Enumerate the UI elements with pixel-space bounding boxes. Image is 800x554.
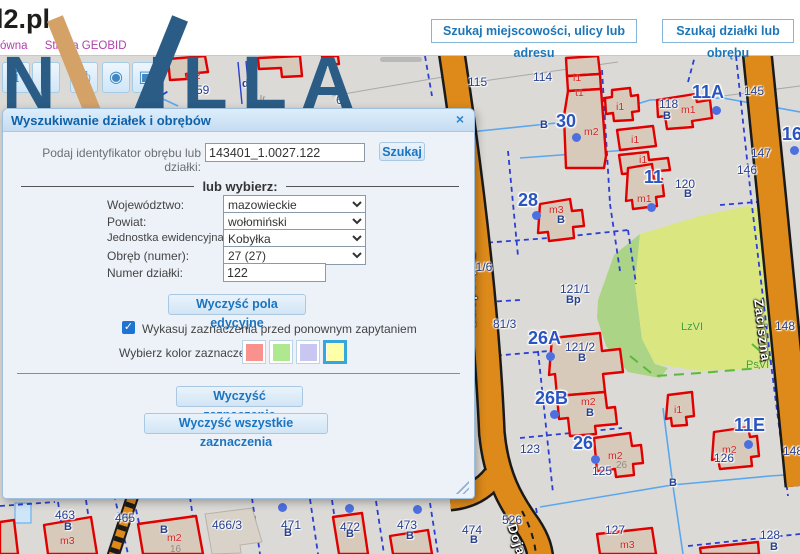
dialog-resize-handle[interactable] — [454, 479, 469, 494]
map-label: B — [578, 352, 586, 364]
search-place-button[interactable]: Szukaj miejscowości, ulicy lub adresu — [431, 19, 637, 43]
selection-color-swatch-0[interactable] — [242, 340, 266, 364]
address-point-dot — [278, 503, 287, 512]
map-label: B — [346, 528, 354, 540]
map-label: i1 — [631, 134, 639, 146]
map-label: 123 — [520, 442, 540, 456]
map-label: 26 — [573, 433, 593, 454]
globe-icon[interactable]: ◉ — [102, 62, 130, 93]
map-label: 66 — [336, 93, 349, 107]
clear-fields-button[interactable]: Wyczyść pola edycyjne — [168, 294, 306, 315]
map-label: 26 — [616, 460, 627, 471]
address-point-dot — [413, 505, 422, 514]
address-point-dot — [572, 133, 581, 142]
map-label: 26B — [535, 388, 568, 409]
parcel-search-dialog: Wyszukiwanie działek i obrębów × Podaj i… — [2, 108, 475, 499]
precinct-label: Obręb (numer): — [107, 249, 189, 263]
map-label: LzVI — [681, 321, 703, 333]
map-label: i1 — [674, 404, 682, 416]
map-label: 466/3 — [212, 518, 242, 532]
close-icon[interactable]: × — [456, 111, 464, 127]
map-label: 146 — [737, 163, 757, 177]
map-label: B — [557, 214, 565, 226]
map-label: 59 — [196, 83, 209, 97]
map-label: 145 — [744, 84, 764, 98]
map-label: B — [663, 110, 671, 122]
clear-before-query-label: Wykasuj zaznaczenia przed ponownym zapyt… — [142, 322, 417, 336]
map-label: 118 — [659, 97, 678, 111]
map-label: B — [470, 534, 478, 546]
map-label: 57 — [146, 79, 159, 93]
swatch-color — [273, 344, 290, 361]
map-label: 26A — [528, 328, 561, 349]
map-label: B — [188, 90, 196, 102]
map-label: 148 — [775, 319, 795, 333]
map-label: i1 — [573, 72, 581, 84]
map-label: 114 — [533, 70, 552, 84]
print-icon[interactable]: ⎙ — [70, 62, 98, 93]
dialog-search-button[interactable]: Szukaj — [379, 142, 425, 161]
top-header: l2.pl ówna Strona GEOBID Szukaj miejscow… — [0, 0, 800, 55]
swatch-color — [300, 344, 317, 361]
map-label: 148 — [783, 444, 800, 458]
map-label: B — [64, 521, 72, 533]
swatch-color — [327, 344, 344, 361]
address-point-dot — [546, 352, 555, 361]
nav-link-geobid[interactable]: Strona GEOBID — [45, 40, 127, 52]
voivodeship-label: Województwo: — [107, 198, 184, 212]
map-label: 28 — [518, 190, 538, 211]
map-label: 115 — [468, 75, 487, 89]
parcel-id-input[interactable] — [205, 143, 365, 162]
address-point-dot — [532, 211, 541, 220]
address-point-dot — [591, 455, 600, 464]
site-logo[interactable]: l2.pl — [0, 4, 50, 35]
selection-color-swatch-2[interactable] — [296, 340, 320, 364]
measure-icon[interactable]: ⌖ — [32, 62, 60, 93]
map-label: B — [770, 541, 778, 553]
county-label: Powiat: — [107, 215, 146, 229]
selection-color-swatch-3[interactable] — [323, 340, 347, 364]
unit-label: Jednostka ewidencyjna: — [107, 232, 227, 244]
nav-link-home[interactable]: ówna — [0, 40, 28, 52]
address-point-dot — [744, 440, 753, 449]
map-label: 16 — [782, 124, 800, 145]
horizontal-scrollbar-thumb[interactable] — [380, 57, 422, 62]
clear-before-query-checkbox[interactable]: ✓ — [122, 321, 135, 334]
map-label: m2 — [186, 70, 201, 82]
address-point-dot — [345, 504, 354, 513]
map-label: B — [669, 477, 677, 489]
or-choose-divider: lub wybierz: — [21, 179, 459, 194]
address-point-dot — [712, 106, 721, 115]
map-label: B — [586, 407, 594, 419]
dialog-title: Wyszukiwanie działek i obrębów — [11, 113, 211, 128]
map-label: 125 — [592, 464, 612, 478]
map-label: B — [540, 119, 548, 131]
map-label: m2 — [167, 532, 182, 544]
clear-selection-button[interactable]: Wyczyść zaznaczenie — [176, 386, 303, 407]
dialog-header[interactable]: Wyszukiwanie działek i obrębów × — [3, 109, 474, 132]
parcel-id-label: Podaj identyfikator obrębu lub działki: — [18, 146, 201, 174]
map-label: 11A — [692, 82, 724, 103]
map-label: Bp — [566, 294, 581, 306]
info-icon[interactable]: ℹ — [2, 62, 30, 93]
map-label: B — [684, 188, 692, 200]
or-choose-label: lub wybierz: — [194, 179, 285, 194]
map-label: 463 — [55, 508, 75, 522]
address-point-dot — [550, 410, 559, 419]
address-point-dot — [647, 203, 656, 212]
map-label: m1 — [681, 104, 696, 116]
map-label: m3 — [620, 539, 635, 551]
swatch-color — [246, 344, 263, 361]
section-divider — [17, 373, 460, 374]
map-label: 147 — [751, 146, 771, 160]
map-label: 11 — [644, 167, 663, 188]
map-label: B — [406, 530, 414, 542]
map-label: 30 — [556, 111, 576, 132]
map-label: i1 — [616, 101, 624, 113]
map-label: 11E — [734, 415, 765, 436]
map-label: i1 — [639, 154, 647, 166]
parcel-number-label: Numer działki: — [107, 266, 183, 280]
map-label: 81/3 — [493, 317, 516, 331]
map-label: 465 — [115, 511, 135, 525]
map-label: B — [284, 527, 292, 539]
map-label: 126 — [714, 451, 734, 465]
map-label: dr — [242, 78, 253, 90]
header-nav: ówna Strona GEOBID — [0, 40, 141, 52]
map-label: m3 — [60, 535, 75, 547]
clear-all-selections-button[interactable]: Wyczyść wszystkie zaznaczenia — [144, 413, 328, 434]
map-label: 127 — [605, 523, 625, 537]
parcel-number-input[interactable] — [223, 263, 326, 282]
address-point-dot — [790, 146, 799, 155]
map-label: m2 — [584, 126, 599, 138]
map-label: Ur — [255, 94, 266, 105]
map-label: t1 — [575, 87, 584, 99]
map-label: 128 — [760, 528, 780, 542]
selection-color-swatch-1[interactable] — [269, 340, 293, 364]
search-parcel-button[interactable]: Szukaj działki lub obrębu — [662, 19, 794, 43]
